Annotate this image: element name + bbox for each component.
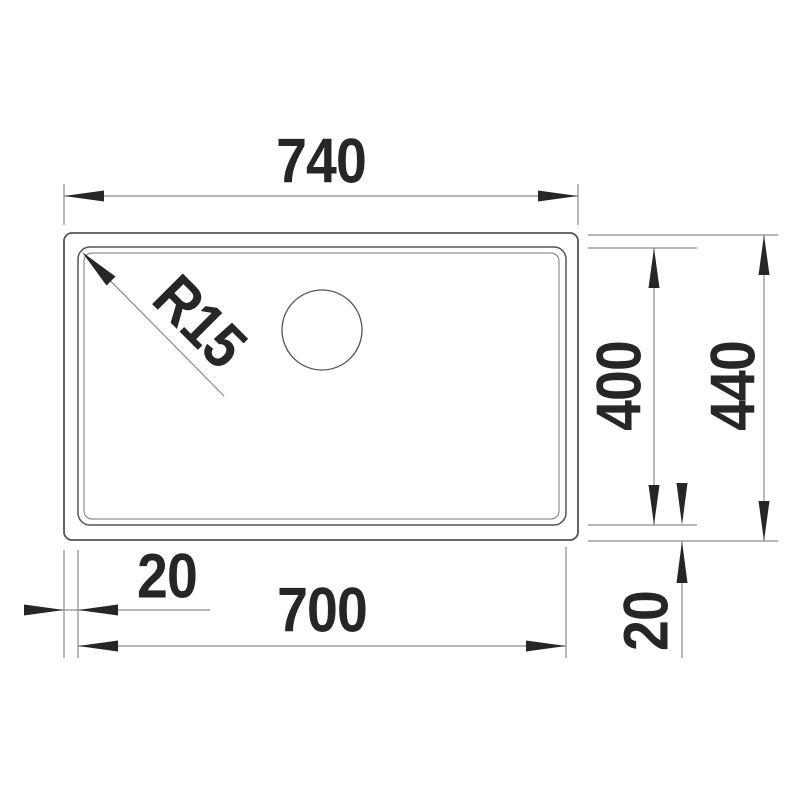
dim-label-rim-offset-bottom: 20 (616, 591, 679, 651)
arrow-up-icon (649, 248, 660, 288)
bowl-outline (78, 247, 566, 525)
dim-label-bowl-depth: 400 (589, 341, 652, 431)
arrow-right-icon (538, 191, 578, 202)
arrow-left-icon (64, 191, 104, 202)
drawing-linework (0, 0, 800, 800)
arrow-right-icon (24, 605, 64, 616)
arrow-up-icon (759, 235, 770, 275)
arrow-down-icon (759, 501, 770, 541)
arrow-left-icon (78, 605, 118, 616)
arrow-left-icon (78, 641, 118, 652)
arrow-up-icon (677, 541, 688, 583)
drain-hole (282, 290, 362, 370)
dim-label-overall-width: 740 (276, 131, 366, 194)
r15-leader-arrow (82, 252, 116, 286)
arrow-down-icon (649, 485, 660, 525)
outer-rim-outline (64, 233, 578, 540)
arrow-right-icon (526, 641, 566, 652)
dim-label-bowl-width: 700 (277, 580, 367, 643)
arrow-down-icon (677, 483, 688, 525)
bowl-inner-edge (84, 253, 559, 519)
sink-dimension-drawing: 740 400 440 20 20 700 R15 (0, 0, 800, 800)
dim-label-rim-offset-left: 20 (137, 546, 197, 609)
dim-label-overall-depth: 440 (703, 341, 766, 431)
